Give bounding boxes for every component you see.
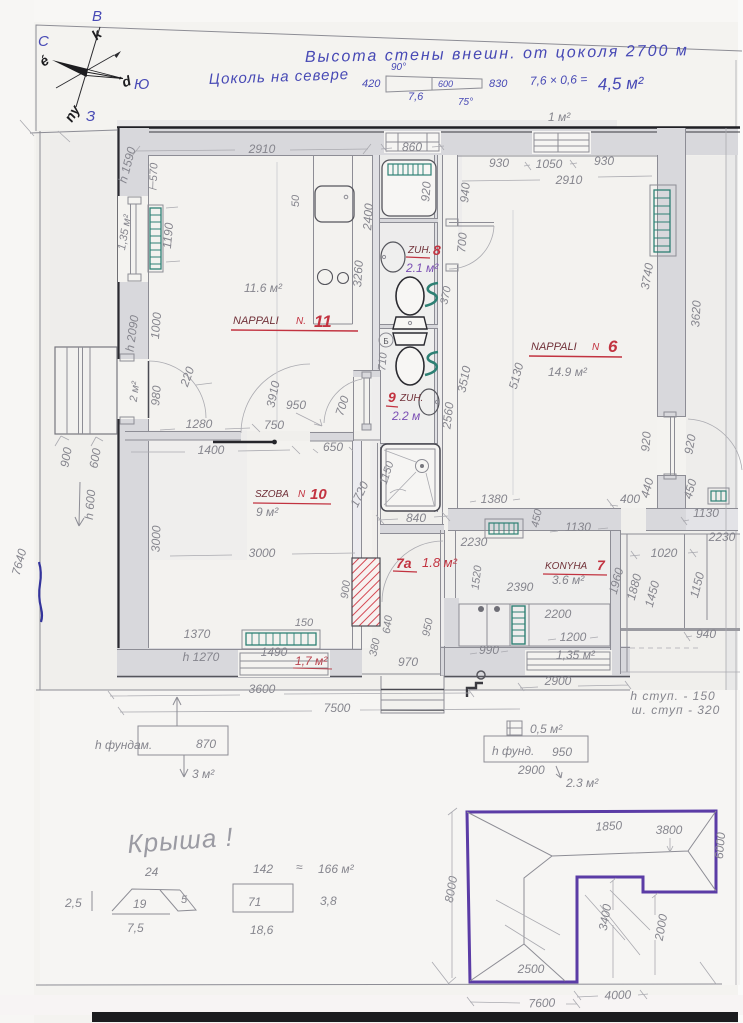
svg-text:1200: 1200 [560, 630, 587, 644]
svg-text:3000: 3000 [149, 525, 164, 552]
svg-text:С: С [38, 33, 49, 50]
svg-text:1,35 м²: 1,35 м² [556, 648, 596, 662]
svg-text:SZOBA: SZOBA [255, 489, 289, 500]
svg-text:1190: 1190 [160, 222, 176, 249]
svg-text:2,5: 2,5 [64, 896, 82, 910]
svg-text:8: 8 [433, 242, 441, 258]
svg-text:650: 650 [323, 440, 343, 454]
svg-text:930: 930 [594, 154, 614, 168]
svg-text:710: 710 [376, 351, 390, 371]
svg-text:h фундам.: h фундам. [95, 738, 152, 752]
svg-text:2.2 м: 2.2 м [391, 409, 420, 423]
svg-text:14.9 м²: 14.9 м² [548, 365, 588, 379]
svg-text:2500: 2500 [517, 962, 545, 976]
svg-text:950: 950 [286, 398, 306, 412]
svg-text:3,8: 3,8 [320, 894, 337, 908]
svg-text:990: 990 [479, 643, 499, 657]
svg-text:7,6 × 0,6 =: 7,6 × 0,6 = [530, 72, 588, 88]
svg-text:980: 980 [148, 385, 164, 406]
svg-text:1,7 м²: 1,7 м² [295, 654, 328, 668]
svg-text:2.3 м²: 2.3 м² [565, 776, 599, 790]
svg-text:1490: 1490 [261, 645, 288, 659]
svg-text:75°: 75° [458, 97, 473, 108]
svg-text:1370: 1370 [184, 627, 211, 641]
svg-text:≈: ≈ [296, 860, 303, 874]
svg-text:2.1 м²: 2.1 м² [405, 261, 439, 275]
svg-text:860: 860 [402, 140, 422, 154]
svg-text:1000: 1000 [148, 311, 164, 339]
svg-text:2910: 2910 [555, 173, 583, 187]
svg-text:1130: 1130 [693, 506, 719, 520]
svg-text:90°: 90° [391, 62, 406, 73]
svg-text:970: 970 [398, 655, 418, 669]
svg-text:N: N [592, 342, 600, 353]
svg-text:2400: 2400 [360, 203, 376, 232]
svg-text:11.6 м²: 11.6 м² [244, 281, 283, 295]
svg-text:6: 6 [608, 337, 618, 356]
svg-text:2200: 2200 [544, 607, 572, 621]
svg-text:0,5 м²: 0,5 м² [530, 722, 563, 736]
svg-text:N: N [298, 489, 306, 500]
svg-text:400: 400 [620, 492, 640, 506]
svg-text:18,6: 18,6 [250, 923, 274, 937]
svg-text:7600: 7600 [528, 996, 555, 1011]
svg-text:600: 600 [438, 79, 453, 89]
svg-text:h 600: h 600 [82, 489, 99, 520]
svg-text:ш. ступ - 320: ш. ступ - 320 [632, 703, 721, 717]
svg-text:h ступ. - 150: h ступ. - 150 [630, 689, 715, 703]
svg-text:2900: 2900 [544, 674, 572, 688]
svg-text:7а: 7а [396, 555, 412, 571]
svg-text:З: З [86, 108, 95, 125]
svg-text:4000: 4000 [604, 988, 631, 1003]
svg-text:166 м²: 166 м² [318, 862, 355, 876]
svg-text:150: 150 [295, 617, 314, 629]
svg-text:870: 870 [196, 737, 216, 751]
svg-text:ZUH.: ZUH. [399, 393, 423, 404]
svg-text:2390: 2390 [506, 580, 534, 594]
svg-text:7500: 7500 [324, 701, 351, 715]
svg-text:ZUH.: ZUH. [407, 245, 431, 256]
svg-text:142: 142 [253, 862, 273, 876]
svg-text:11: 11 [314, 312, 332, 331]
svg-text:750: 750 [264, 418, 284, 432]
svg-text:840: 840 [406, 511, 426, 525]
svg-text:830: 830 [489, 78, 508, 90]
svg-text:1380: 1380 [481, 492, 508, 506]
svg-text:3260: 3260 [350, 260, 366, 288]
svg-text:NAPPALI: NAPPALI [531, 341, 577, 353]
svg-text:2230: 2230 [460, 535, 488, 549]
svg-text:Ю: Ю [134, 76, 149, 93]
svg-text:1.8 м²: 1.8 м² [422, 555, 458, 570]
svg-text:50: 50 [290, 194, 302, 207]
svg-text:9 м²: 9 м² [256, 505, 279, 519]
svg-text:NAPPALI: NAPPALI [233, 315, 279, 327]
svg-text:3000: 3000 [249, 546, 276, 560]
svg-text:7: 7 [597, 557, 606, 573]
svg-text:3.6 м²: 3.6 м² [552, 573, 585, 587]
svg-text:1850: 1850 [595, 818, 623, 833]
svg-text:420: 420 [362, 78, 381, 90]
svg-text:10: 10 [310, 486, 327, 503]
svg-text:h 1270: h 1270 [183, 650, 220, 664]
svg-text:1280: 1280 [186, 417, 213, 431]
svg-text:950: 950 [552, 745, 572, 759]
svg-text:1400: 1400 [198, 443, 225, 457]
svg-text:24: 24 [144, 865, 159, 879]
svg-text:7,6: 7,6 [408, 91, 424, 103]
svg-text:KONYHA: KONYHA [545, 561, 588, 572]
svg-text:700: 700 [454, 232, 470, 253]
svg-text:9: 9 [388, 389, 396, 405]
svg-text:2910: 2910 [248, 142, 276, 156]
svg-text:N.: N. [296, 316, 306, 327]
svg-text:7,5: 7,5 [127, 921, 144, 935]
svg-text:940: 940 [696, 627, 716, 641]
svg-text:4,5 м²: 4,5 м² [597, 73, 645, 94]
svg-text:920: 920 [638, 431, 654, 452]
svg-text:19: 19 [133, 897, 147, 911]
svg-text:920: 920 [418, 181, 434, 202]
svg-text:2230: 2230 [708, 530, 736, 544]
svg-text:1 м²: 1 м² [548, 110, 571, 124]
svg-text:Б: Б [383, 337, 388, 346]
svg-text:⊢570: ⊢570 [148, 162, 161, 191]
svg-text:1050: 1050 [536, 157, 563, 171]
svg-text:5: 5 [181, 894, 188, 906]
svg-text:1020: 1020 [651, 546, 678, 560]
svg-text:940: 940 [457, 182, 473, 203]
svg-text:h фунд.: h фунд. [492, 744, 534, 758]
svg-text:6000: 6000 [712, 831, 728, 859]
svg-text:2900: 2900 [517, 763, 545, 777]
svg-text:3 м²: 3 м² [192, 767, 215, 781]
svg-text:71: 71 [248, 895, 261, 909]
svg-text:3620: 3620 [688, 300, 703, 328]
svg-text:1130: 1130 [565, 520, 591, 534]
svg-text:930: 930 [489, 156, 509, 170]
svg-text:В: В [92, 8, 102, 25]
svg-text:3800: 3800 [656, 823, 683, 837]
svg-text:3600: 3600 [249, 682, 276, 696]
